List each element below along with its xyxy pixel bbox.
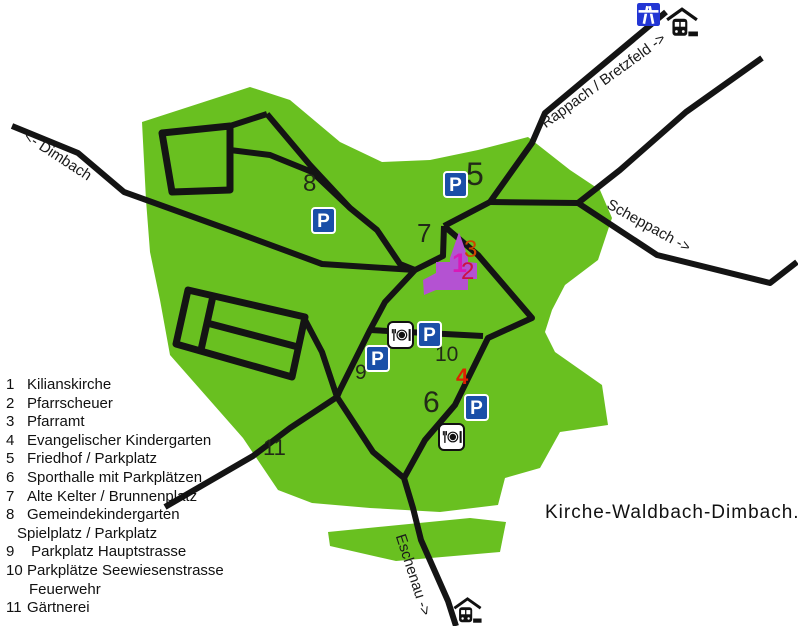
parking-icon: P [464,394,489,421]
legend-item-number: 9 [6,543,27,562]
legend-item-number: 7 [6,488,27,507]
parking-icon: P [417,321,442,348]
train-station-icon [452,596,483,626]
marker-5-friedhof: 5 [466,158,484,190]
legend-item-label: Gemeindekindergarten [27,506,180,523]
legend-item-label: Feuerwehr [29,581,101,598]
parking-icon: P [443,171,468,198]
legend-item-number: 10 [6,562,27,581]
train-station-icon [665,6,699,45]
marker-6-sporthalle: 6 [423,388,440,418]
legend-item-number: 6 [6,469,27,488]
parking-icon: P [311,207,336,234]
website-label: Kirche-Waldbach-Dimbach.de [545,502,798,524]
restaurant-icon [438,423,465,451]
legend-item-number: 4 [6,432,27,451]
parking-icon: P [365,345,390,372]
legend-item: 9 Parkplatz Hauptstrasse [6,543,266,562]
legend-item-label: Gärtnerei [27,599,90,616]
legend-item-number: 1 [6,376,27,395]
legend-item: 1Kilianskirche [6,376,266,395]
legend-item-number: 8 [6,506,27,525]
legend-item: 8Gemeindekindergarten [6,506,266,525]
road-east-link [490,202,578,203]
legend-item: 5Friedhof / Parkplatz [6,450,266,469]
marker-4-ev-kindergarten: 4 [456,366,468,388]
legend-item: 11Gärtnerei [6,599,266,618]
legend-item-label: Pfarrscheuer [27,395,113,412]
legend-item-label: Parkplätze Seewiesenstrasse [27,562,224,579]
legend-item: 7Alte Kelter / Brunnenplatz [6,488,266,507]
restaurant-icon [387,321,414,349]
legend-item: 10Parkplätze Seewiesenstrasse [6,562,266,581]
legend-item: 3Pfarramt [6,413,266,432]
legend-item-label: Friedhof / Parkplatz [27,450,157,467]
marker-7-alte-kelter: 7 [417,220,431,246]
marker-2-pfarrscheuer: 2 [461,260,474,284]
autobahn-icon [637,3,660,31]
legend-item-number: 3 [6,413,27,432]
legend-item: 2Pfarrscheuer [6,395,266,414]
legend-item-label: Pfarramt [27,413,85,430]
legend-item-number: 2 [6,395,27,414]
legend: 1Kilianskirche2Pfarrscheuer3Pfarramt4Eva… [6,376,266,618]
legend-item: Feuerwehr [6,581,266,600]
marker-8-kindergarten: 8 [303,172,316,196]
legend-item-label: Sporthalle mit Parkplätzen [27,469,202,486]
legend-item: 6Sporthalle mit Parkplätzen [6,469,266,488]
legend-item-number: 11 [6,599,27,618]
legend-item-label: Evangelischer Kindergarten [27,432,211,449]
village-map: 5 7 8 3 1 2 9 10 4 6 11 P P P P P [0,0,798,626]
legend-item-label: Parkplatz Hauptstrasse [27,543,186,560]
legend-item-number: 5 [6,450,27,469]
legend-item-label: Alte Kelter / Brunnenplatz [27,488,197,505]
legend-item-label: Kilianskirche [27,376,111,393]
legend-item: Spielplatz / Parkplatz [6,525,266,544]
legend-item-label: Spielplatz / Parkplatz [17,525,157,542]
legend-item: 4Evangelischer Kindergarten [6,432,266,451]
marker-11-gaertnerei: 11 [263,437,286,459]
